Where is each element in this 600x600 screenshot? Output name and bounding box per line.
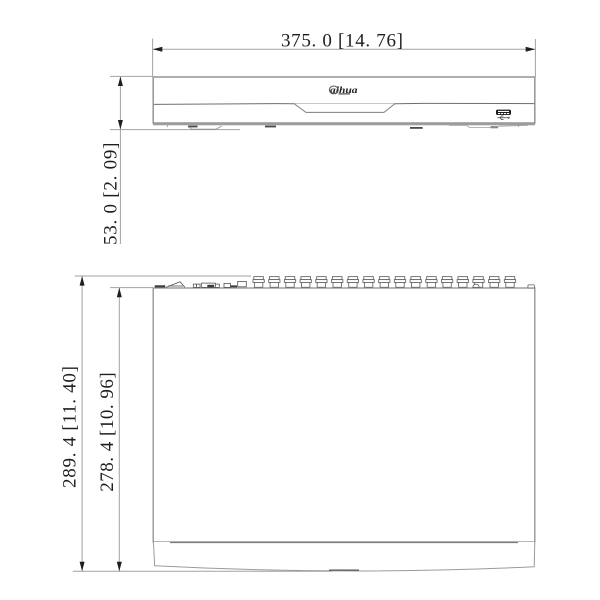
svg-text:375. 0 [14. 76]: 375. 0 [14. 76] [281,30,403,51]
svg-text:289. 4 [11. 40]: 289. 4 [11. 40] [60,366,81,488]
svg-text:278. 4 [10. 96]: 278. 4 [10. 96] [97,372,118,492]
svg-text:53. 0 [2. 09]: 53. 0 [2. 09] [101,143,122,246]
